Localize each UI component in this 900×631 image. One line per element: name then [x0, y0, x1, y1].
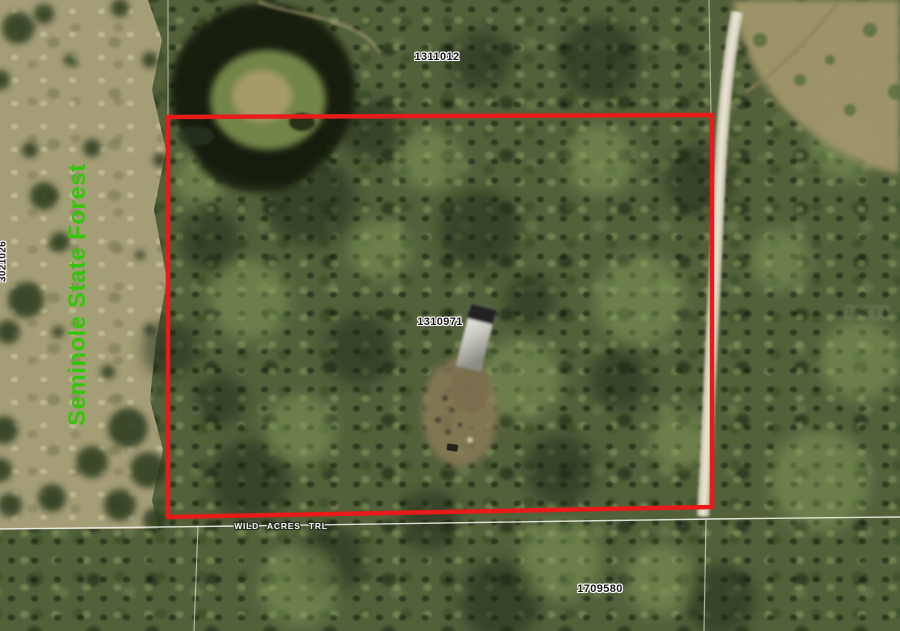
scrub-top-right [718, 0, 900, 175]
parcel-id-label-center: 1310971 [417, 316, 463, 328]
state-forest-label: Seminole State Forest [64, 180, 92, 426]
dirt-clearing [422, 357, 498, 467]
aerial-map: 1311012 1310971 1709580 WILD ACRES TRL S… [0, 0, 900, 631]
road-name-label: WILD ACRES TRL [234, 521, 328, 531]
parcel-id-label-top: 1311012 [414, 51, 459, 63]
dirt-road-right [703, 12, 737, 516]
watermark-artifact [846, 306, 888, 319]
parcel-id-label-left-edge: 3021026 [0, 222, 9, 302]
parcel-id-label-bottom-right: 1709580 [577, 583, 623, 595]
